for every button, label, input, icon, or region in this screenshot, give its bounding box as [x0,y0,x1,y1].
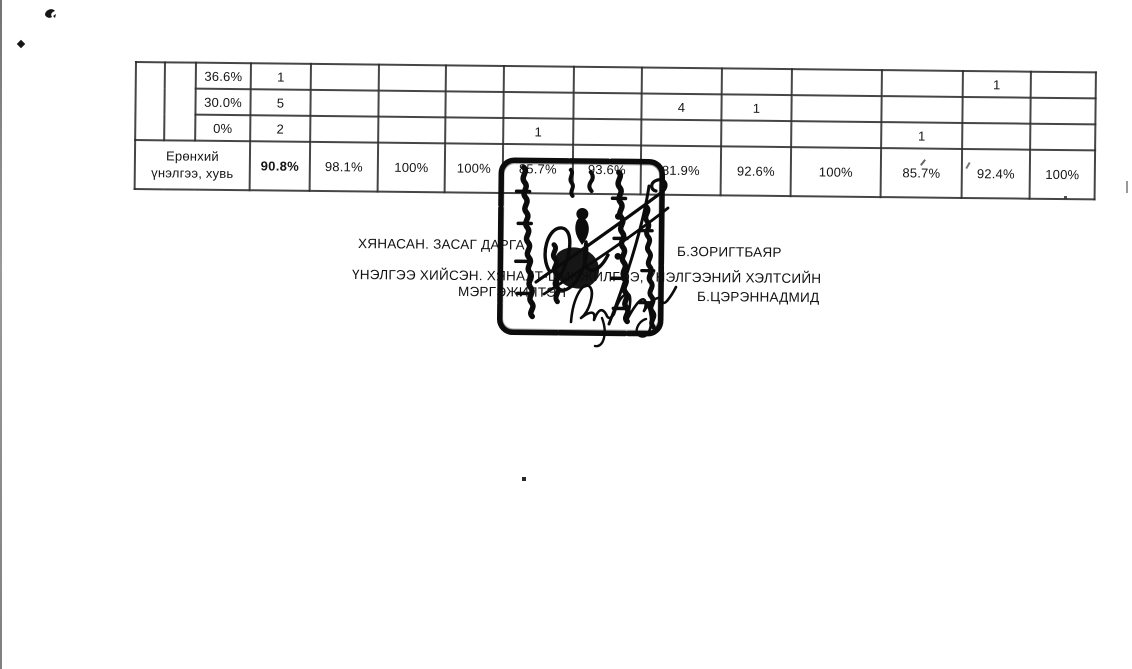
row-label-cell: 0% [195,115,250,142]
official-seal-stamp [493,151,673,345]
table-cell [641,119,721,146]
table-cell [445,91,503,118]
evaluated-by-name: Б.ЦЭРЭННАДМИД [697,289,820,305]
table-cell [310,116,378,143]
empty-merged-cell [135,62,165,140]
table-cell [573,119,641,146]
table-cell [445,117,503,144]
table-cell: 1 [721,94,791,121]
table-cell [962,123,1030,150]
table-cell: 5 [250,89,310,116]
table-cell: 1 [963,71,1031,98]
table-cell [962,97,1030,124]
table-cell [378,117,445,144]
table-cell: 85.7% [881,148,963,198]
table-cell [574,67,642,94]
table-cell [378,91,445,118]
table-cell: 98.1% [310,142,379,192]
table-cell [311,64,379,91]
table-cell: 90.8% [250,141,311,191]
table-cell [379,65,446,92]
table-cell: 1 [881,122,962,149]
table-cell [1030,98,1095,125]
table-cell [504,66,574,93]
table-cell [1031,72,1096,99]
table-cell [503,92,573,119]
table-cell: 100% [791,147,882,197]
table-cell [721,120,791,147]
scan-artifact [1126,181,1128,193]
ink-speck-icon [17,40,25,48]
table-cell: 4 [641,93,721,120]
row-label-cell: 36.6% [196,63,251,90]
empty-merged-cell [164,62,196,140]
ink-speck-icon [42,6,58,22]
table-cell [446,65,504,92]
table-cell: 1 [251,63,311,90]
table-cell [792,69,882,96]
table-cell: 2 [250,115,310,142]
table-cell [881,96,962,123]
table-cell [722,68,792,95]
table-cell: 92.4% [962,149,1031,199]
ink-speck-icon [522,477,526,481]
table-cell: 100% [378,143,446,193]
table-cell: 1 [503,118,573,145]
reviewed-by-name: Б.ЗОРИГТБАЯР [677,244,782,260]
table-cell [1030,124,1095,151]
table-cell [642,67,722,94]
table-cell [882,70,963,97]
table-cell [310,90,378,117]
table-cell [573,93,641,120]
table-cell: 92.6% [721,146,792,196]
table-cell: 100% [1030,150,1096,200]
table-cell [791,95,881,122]
row-label-cell: 30.0% [195,89,250,116]
table-cell [791,121,881,148]
summary-label-cell: Ерөнхий үнэлгээ, хувь [135,140,251,190]
scan-edge-artifact [0,0,2,669]
